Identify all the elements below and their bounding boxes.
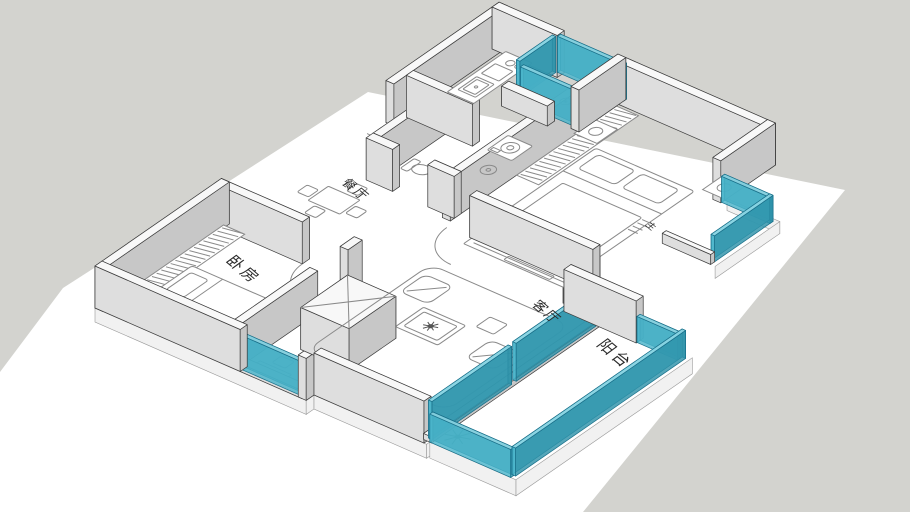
- floorplan-3d-model[interactable]: 餐厅 卧房 客厅 阳台 主: [0, 0, 910, 512]
- floorplan-geometry: [0, 0, 910, 512]
- model-viewport: 餐厅 卧房 客厅 阳台 主: [0, 0, 910, 512]
